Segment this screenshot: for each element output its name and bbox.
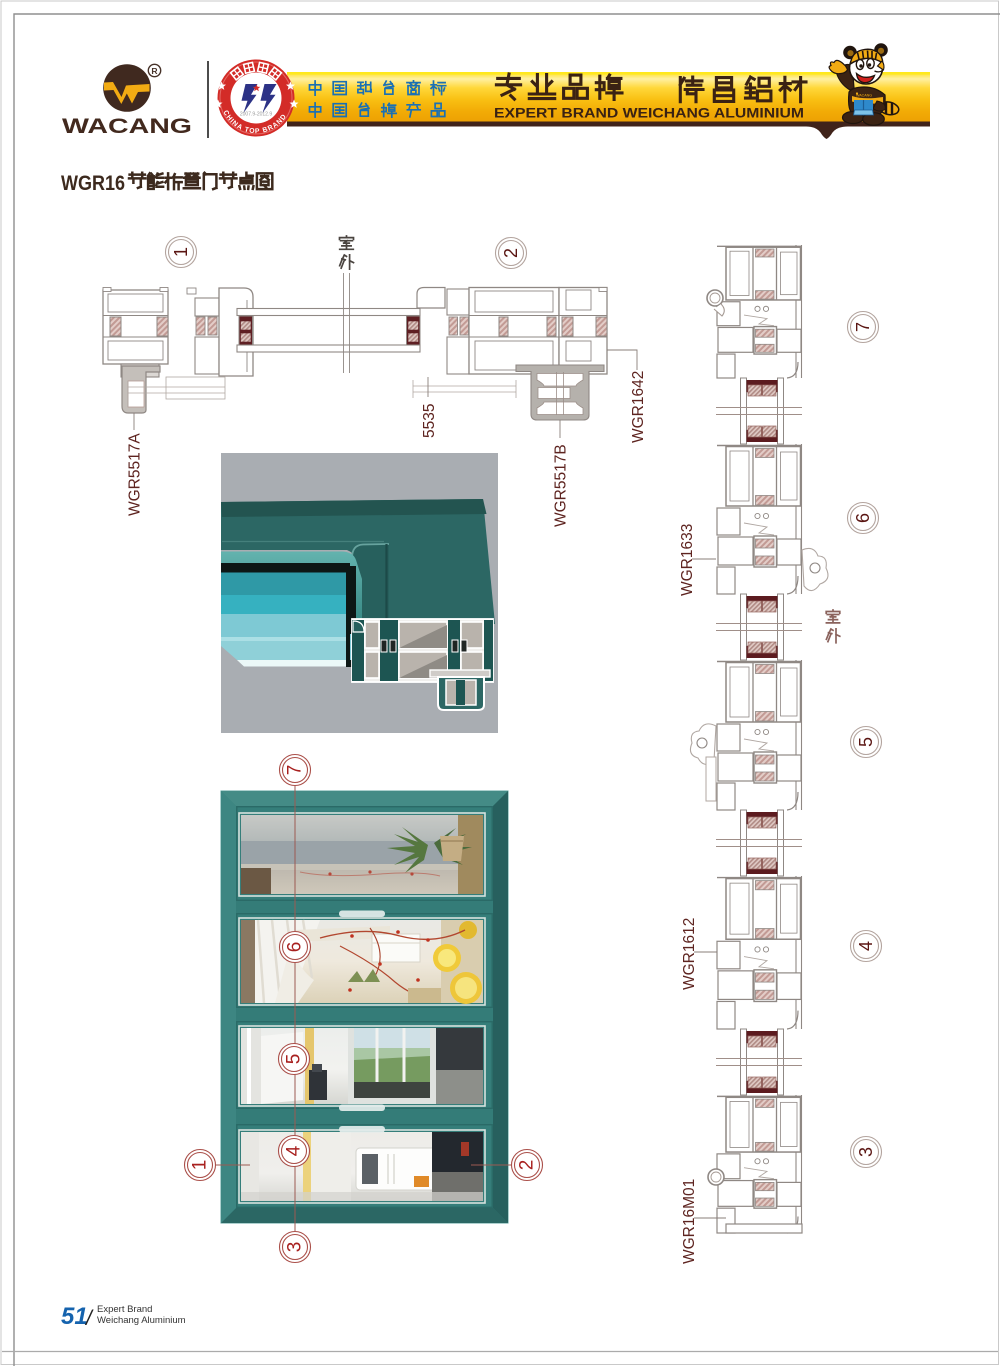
svg-text:WGR1612: WGR1612 xyxy=(681,918,698,990)
svg-text:6: 6 xyxy=(285,942,306,953)
svg-text:3: 3 xyxy=(856,1147,876,1157)
svg-text:4: 4 xyxy=(856,941,876,951)
svg-text:WGR1633: WGR1633 xyxy=(679,524,696,596)
svg-text:WGR1642: WGR1642 xyxy=(630,371,647,443)
svg-text:51: 51 xyxy=(61,1303,88,1330)
svg-text:Expert Brand: Expert Brand xyxy=(97,1304,152,1315)
svg-text:R: R xyxy=(151,66,158,76)
svg-text:EXPERT BRAND WEICHANG ALUMINIU: EXPERT BRAND WEICHANG ALUMINIUM xyxy=(494,106,804,122)
svg-text:WGR16: WGR16 xyxy=(61,171,125,195)
svg-text:Weichang Aluminium: Weichang Aluminium xyxy=(97,1315,186,1326)
svg-text:WGR16M01: WGR16M01 xyxy=(681,1179,698,1264)
svg-text:WGR5517B: WGR5517B xyxy=(553,444,570,527)
svg-text:7: 7 xyxy=(853,322,873,332)
svg-text:1: 1 xyxy=(171,247,191,257)
svg-text:5535: 5535 xyxy=(421,404,438,438)
svg-text:5: 5 xyxy=(856,737,876,747)
svg-text:3: 3 xyxy=(285,1242,306,1253)
svg-text:5: 5 xyxy=(284,1054,305,1065)
svg-text:7: 7 xyxy=(285,765,306,776)
svg-text:6: 6 xyxy=(853,513,873,523)
svg-text:WACANG: WACANG xyxy=(856,94,872,98)
svg-text:4: 4 xyxy=(284,1145,305,1156)
svg-text:WGR5517A: WGR5517A xyxy=(127,433,144,516)
svg-text:1: 1 xyxy=(190,1160,211,1171)
svg-text:2: 2 xyxy=(517,1160,538,1171)
svg-text:2007.9-2012.9: 2007.9-2012.9 xyxy=(240,112,272,118)
svg-text:2: 2 xyxy=(501,248,521,258)
svg-text:WACANG: WACANG xyxy=(62,114,192,138)
